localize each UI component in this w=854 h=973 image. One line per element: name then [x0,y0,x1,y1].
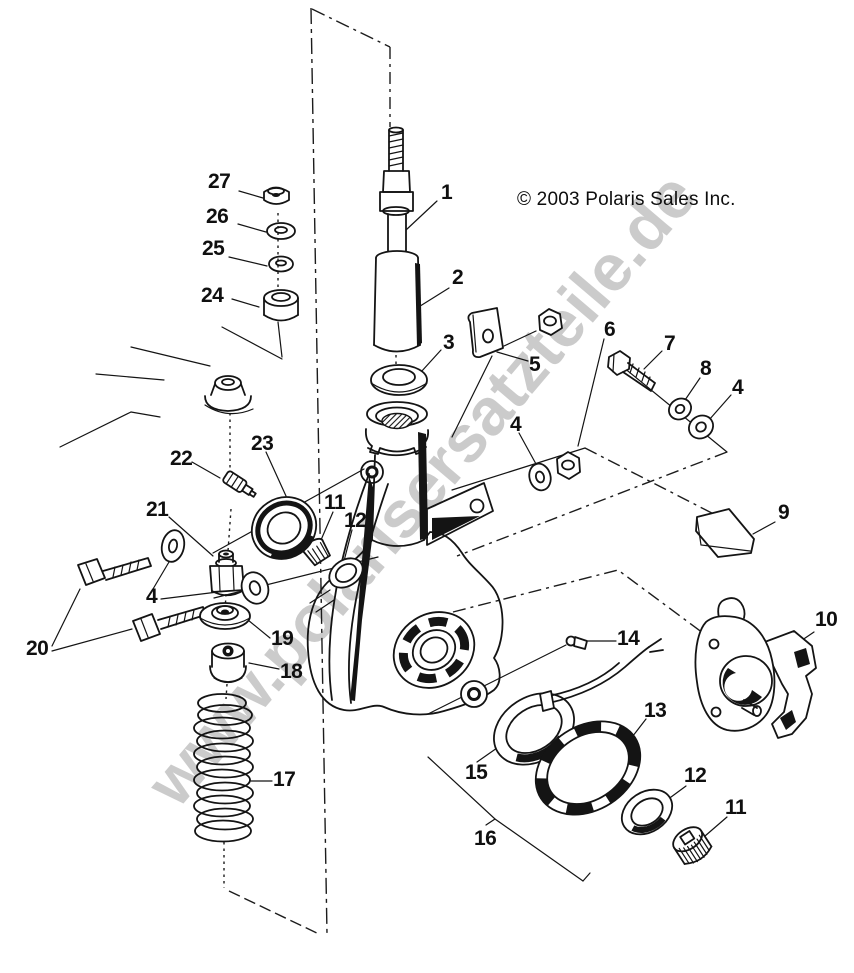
callout-5: 5 [529,354,540,375]
washer-4-left [159,528,187,564]
callout-1: 1 [441,182,452,203]
strut-rod [380,128,413,259]
bolt-20-lower [133,607,205,641]
washer-26 [267,223,295,239]
callout-10: 10 [815,609,837,630]
callout-12-upper: 12 [344,510,366,531]
mount-post [205,376,253,414]
copyright-notice: © 2003 Polaris Sales Inc. [517,189,736,212]
bolt-7 [608,351,655,391]
bushing-24 [264,290,298,321]
callout-4-left: 4 [146,586,157,607]
fitting-14 [567,637,588,650]
callout-12-lower: 12 [684,765,706,786]
callout-27: 27 [208,171,230,192]
callout-20: 20 [26,638,48,659]
callout-11-lower: 11 [725,797,746,818]
callout-11-upper: 11 [324,492,345,513]
coil-spring-17 [194,694,253,842]
callout-26: 26 [206,206,228,227]
nut-mid [557,452,580,479]
callout-23: 23 [251,433,273,454]
spindle-nut-11-lower [669,822,714,868]
washer-4-mid [526,461,553,493]
diagram-line-art [0,0,854,973]
strut-housing-knuckle [308,402,503,714]
callout-4-mid: 4 [510,414,521,435]
callout-25: 25 [202,238,224,259]
callout-3: 3 [443,332,454,353]
callout-15: 15 [465,762,487,783]
wedge-9 [696,509,754,557]
spring-retainer-19 [200,603,250,629]
callout-2: 2 [452,267,463,288]
grease-fitting-22 [222,470,258,500]
callout-16: 16 [474,828,496,849]
callout-18: 18 [280,661,302,682]
callout-17: 17 [273,769,295,790]
washer-3 [371,365,427,395]
callout-24: 24 [201,285,223,306]
callout-4-right: 4 [732,377,743,398]
washer-25 [269,257,293,272]
callout-19: 19 [271,628,293,649]
callout-9: 9 [778,502,789,523]
strut-cartridge-body [374,251,422,352]
nut-6 [539,309,562,335]
callout-6: 6 [604,319,615,340]
callout-8: 8 [700,358,711,379]
locknut-18 [210,644,246,683]
parts-diagram-page: www.polarisersatzteile.de [0,0,854,973]
callout-7: 7 [664,333,675,354]
tab-bracket-5 [468,308,503,357]
callout-13: 13 [644,700,666,721]
callout-21: 21 [146,499,168,520]
callout-22: 22 [170,448,192,469]
washer-8 [665,394,695,423]
callout-14: 14 [617,628,639,649]
fitting-nut-21 [210,551,244,596]
locknut-27 [264,188,289,205]
caliper-10 [695,598,816,738]
control-arm-sketch-lines [60,347,210,447]
bolt-20-upper [78,558,151,585]
